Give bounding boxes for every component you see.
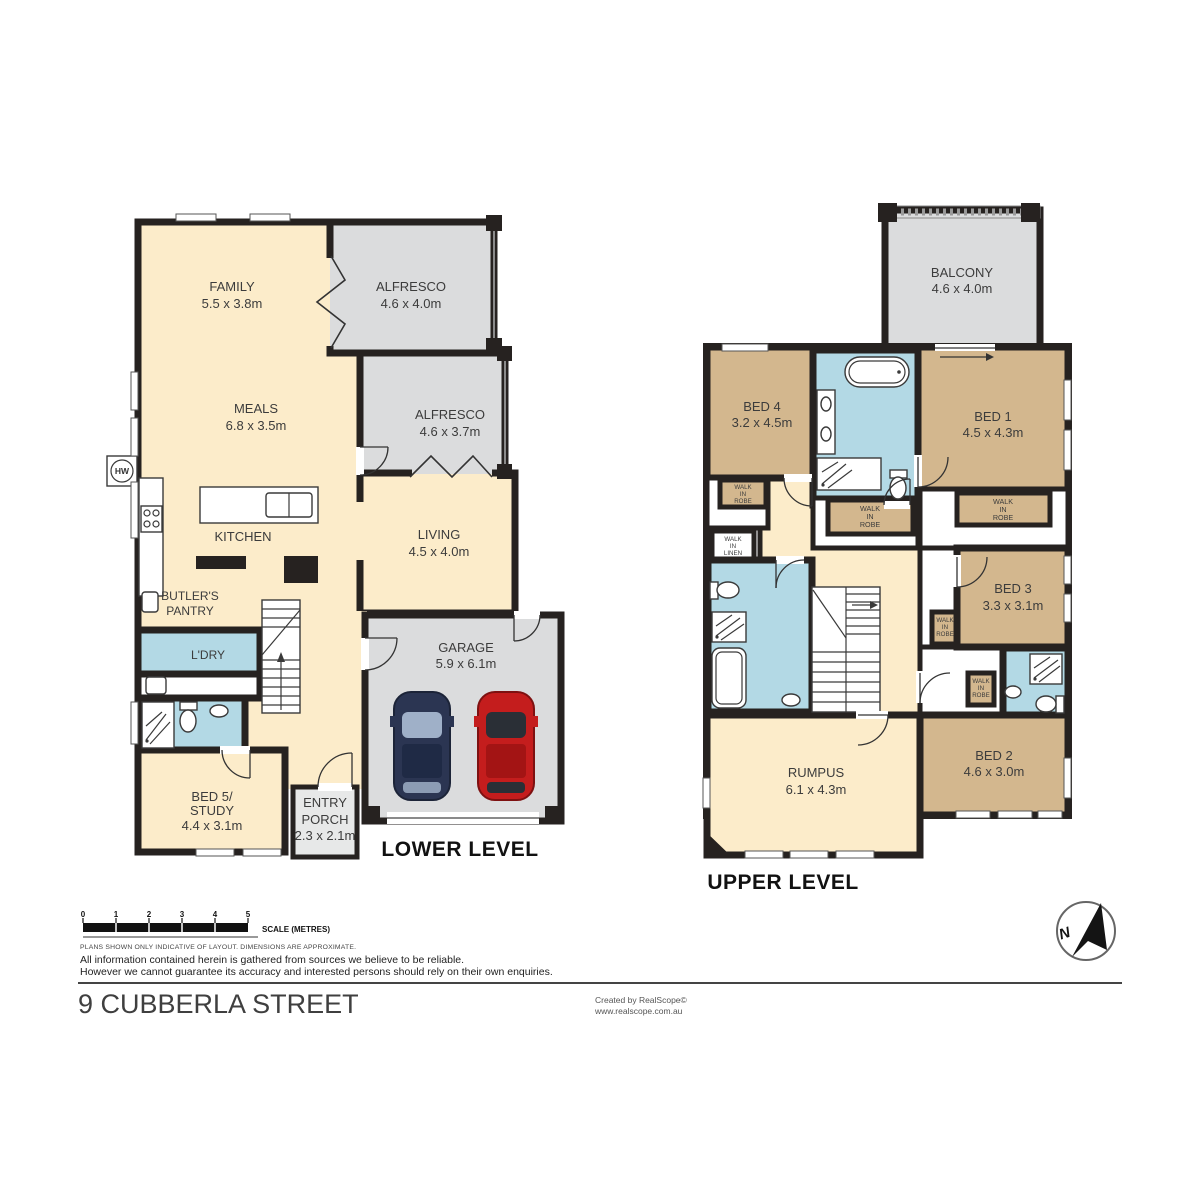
porch-label: PORCH <box>302 812 349 827</box>
svg-text:ROBE: ROBE <box>936 631 954 638</box>
car-navy <box>390 692 454 800</box>
scale-tick-0: 0 <box>81 910 86 919</box>
bed2-label: BED 2 <box>975 748 1013 763</box>
window <box>131 482 138 538</box>
garage-label: GARAGE <box>438 640 494 655</box>
wall-segment <box>196 556 246 569</box>
alfresco-mid-label: ALFRESCO <box>415 407 485 422</box>
pillar <box>878 203 897 222</box>
lower-level-plan: HW <box>107 214 562 861</box>
scale-bar-label: SCALE (METRES) <box>262 925 330 934</box>
window <box>131 372 138 410</box>
pantry-sink <box>142 592 158 612</box>
scale-tick-2: 2 <box>147 910 152 919</box>
butlers-pantry-label-2: PANTRY <box>166 604 214 618</box>
window <box>1064 380 1071 420</box>
svg-text:WALK: WALK <box>972 678 990 685</box>
laundry-sink <box>146 677 166 694</box>
svg-text:IN: IN <box>942 624 948 631</box>
shower-icon <box>1030 654 1062 684</box>
balcony-dims: 4.6 x 4.0m <box>932 281 993 296</box>
entry-label: ENTRY <box>303 795 347 810</box>
window <box>998 811 1032 818</box>
bed2-dims: 4.6 x 3.0m <box>964 764 1025 779</box>
svg-text:ROBE: ROBE <box>734 498 752 505</box>
family-dims: 5.5 x 3.8m <box>202 296 263 311</box>
pillar <box>545 806 562 823</box>
pillar <box>1021 203 1040 222</box>
alfresco-top-label: ALFRESCO <box>376 279 446 294</box>
credit-line-2: www.realscope.com.au <box>594 1006 683 1016</box>
kitchen-label: KITCHEN <box>214 529 271 544</box>
scale-tick-5: 5 <box>246 910 251 919</box>
window <box>745 851 783 858</box>
scale-bar: 0 1 2 3 4 5 SCALE (METRES) <box>81 910 331 937</box>
toilet-icon <box>180 702 197 732</box>
window <box>1038 811 1062 818</box>
shower-icon <box>142 702 174 748</box>
window <box>1064 594 1071 622</box>
window <box>250 214 290 221</box>
toilet-icon <box>1036 696 1064 713</box>
meals-label: MEALS <box>234 401 278 416</box>
window <box>196 849 234 856</box>
hot-water-label: HW <box>115 466 130 476</box>
butlers-pantry-label-1: BUTLER'S <box>161 589 219 603</box>
window <box>131 418 138 456</box>
scale-tick-3: 3 <box>180 910 185 919</box>
svg-text:WALK: WALK <box>734 484 752 491</box>
bath-icon <box>845 357 909 387</box>
open-edge-patch <box>322 258 330 346</box>
rumpus-dims: 6.1 x 4.3m <box>786 782 847 797</box>
alfresco-mid-dims: 4.6 x 3.7m <box>420 424 481 439</box>
lower-level-title: LOWER LEVEL <box>381 838 538 861</box>
laundry-label: L'DRY <box>191 648 225 662</box>
svg-text:WALK: WALK <box>936 617 954 624</box>
car-red <box>474 692 538 800</box>
scale-tick-4: 4 <box>213 910 218 919</box>
lower-stairs <box>262 600 300 713</box>
pillar <box>497 464 512 479</box>
floorplan-canvas: HW <box>0 0 1200 1200</box>
living-label: LIVING <box>418 527 461 542</box>
basin-icon <box>782 694 800 706</box>
bed4-dims: 3.2 x 4.5m <box>732 415 793 430</box>
basin-icon <box>1005 686 1021 698</box>
alfresco-top-dims: 4.6 x 4.0m <box>381 296 442 311</box>
disclaimer-line-1: All information contained herein is gath… <box>80 954 464 966</box>
family-label: FAMILY <box>209 279 255 294</box>
bed5-label-2: STUDY <box>190 803 234 818</box>
pillar <box>497 346 512 361</box>
svg-text:ROBE: ROBE <box>860 520 881 529</box>
bed5-label-1: BED 5/ <box>191 789 233 804</box>
svg-text:LINEN: LINEN <box>724 550 742 557</box>
window <box>176 214 216 221</box>
bed4-label: BED 4 <box>743 399 781 414</box>
bed1-label: BED 1 <box>974 409 1012 424</box>
upper-level-title: UPPER LEVEL <box>707 871 858 894</box>
meals-dims: 6.8 x 3.5m <box>226 418 287 433</box>
bed3-label: BED 3 <box>994 581 1032 596</box>
window <box>790 851 828 858</box>
svg-text:WALK: WALK <box>724 536 742 543</box>
window <box>131 702 138 744</box>
window <box>836 851 874 858</box>
living-area <box>360 473 515 613</box>
svg-text:ROBE: ROBE <box>972 692 990 699</box>
bath-icon <box>712 648 746 708</box>
pillar <box>363 806 380 823</box>
kitchen-bench <box>139 478 163 596</box>
garage-dims: 5.9 x 6.1m <box>436 656 497 671</box>
window <box>722 344 768 351</box>
bed3-dims: 3.3 x 3.1m <box>983 598 1044 613</box>
shower-icon <box>712 612 746 642</box>
porch-dims: 2.3 x 2.1m <box>295 828 356 843</box>
scale-bar-rect <box>83 923 248 932</box>
disclaimer-line-2: However we cannot guarantee its accuracy… <box>80 966 553 978</box>
property-address: 9 CUBBERLA STREET <box>78 989 359 1019</box>
open-edge-patch <box>330 258 339 346</box>
window <box>956 811 990 818</box>
window <box>1064 758 1071 798</box>
toilet-icon <box>710 582 739 599</box>
bed1-dims: 4.5 x 4.3m <box>963 425 1024 440</box>
cooktop-icon <box>141 506 162 532</box>
svg-text:IN: IN <box>978 685 984 692</box>
open-edge-patch <box>412 467 492 474</box>
upper-level-plan: BALCONY 4.6 x 4.0m BED 4 3.2 x 4.5m BED … <box>703 203 1071 894</box>
svg-text:IN: IN <box>740 491 746 498</box>
toilet-icon <box>890 470 907 499</box>
vanity-icon <box>817 390 835 454</box>
floorplan-page: HW <box>0 0 1200 1200</box>
window <box>1064 430 1071 470</box>
footer: 9 CUBBERLA STREET Created by RealScope© … <box>78 989 688 1019</box>
wall-segment <box>284 556 318 583</box>
basin-icon <box>210 705 228 717</box>
window <box>243 849 281 856</box>
pillar <box>486 215 502 231</box>
bed5-dims: 4.4 x 3.1m <box>182 818 243 833</box>
window <box>703 778 710 808</box>
window <box>1064 556 1071 584</box>
plans-note: PLANS SHOWN ONLY INDICATIVE OF LAYOUT. D… <box>80 944 356 951</box>
credit-line-1: Created by RealScope© <box>595 995 688 1005</box>
svg-text:ROBE: ROBE <box>993 513 1014 522</box>
opening-patch <box>355 502 366 560</box>
svg-text:IN: IN <box>730 543 736 550</box>
shower-icon <box>817 458 881 490</box>
living-dims: 4.5 x 4.0m <box>409 544 470 559</box>
scale-tick-1: 1 <box>114 910 119 919</box>
upper-stairs <box>812 587 880 712</box>
north-compass-icon: N <box>1057 902 1115 960</box>
balcony-label: BALCONY <box>931 265 993 280</box>
rumpus-label: RUMPUS <box>788 765 845 780</box>
disclaimer-block: PLANS SHOWN ONLY INDICATIVE OF LAYOUT. D… <box>80 944 553 978</box>
